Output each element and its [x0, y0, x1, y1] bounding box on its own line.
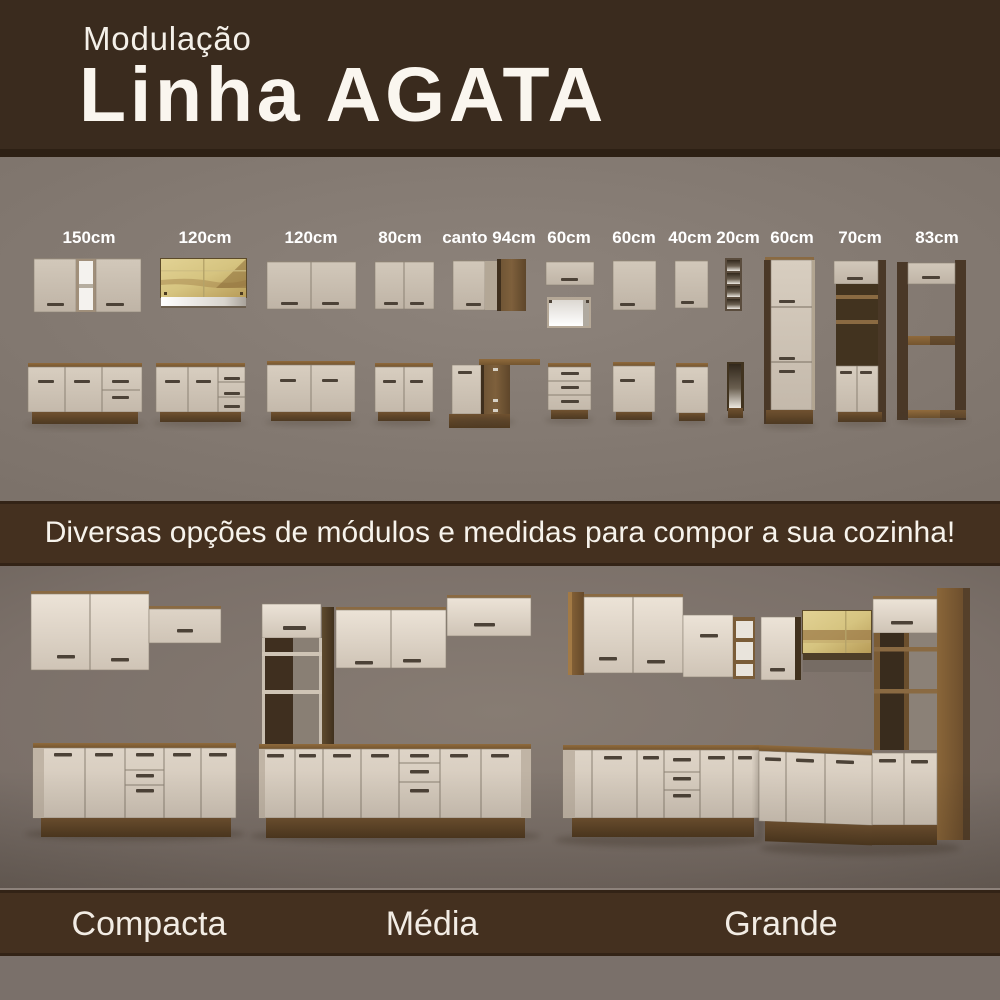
svg-text:Linha AGATA: Linha AGATA	[79, 52, 607, 138]
svg-text:80cm: 80cm	[378, 228, 421, 247]
svg-text:83cm: 83cm	[915, 228, 958, 247]
svg-text:Grande: Grande	[724, 905, 837, 943]
svg-text:120cm: 120cm	[285, 228, 338, 247]
svg-text:60cm: 60cm	[547, 228, 590, 247]
svg-text:canto 94cm: canto 94cm	[442, 228, 536, 247]
svg-text:60cm: 60cm	[612, 228, 655, 247]
svg-text:70cm: 70cm	[838, 228, 881, 247]
svg-text:Compacta: Compacta	[72, 905, 227, 943]
svg-text:150cm: 150cm	[63, 228, 116, 247]
svg-text:120cm: 120cm	[179, 228, 232, 247]
svg-text:20cm: 20cm	[716, 228, 759, 247]
svg-text:Diversas opções de módulos e m: Diversas opções de módulos e medidas par…	[45, 516, 956, 549]
svg-text:60cm: 60cm	[770, 228, 813, 247]
svg-text:40cm: 40cm	[668, 228, 711, 247]
svg-text:Média: Média	[386, 905, 479, 943]
